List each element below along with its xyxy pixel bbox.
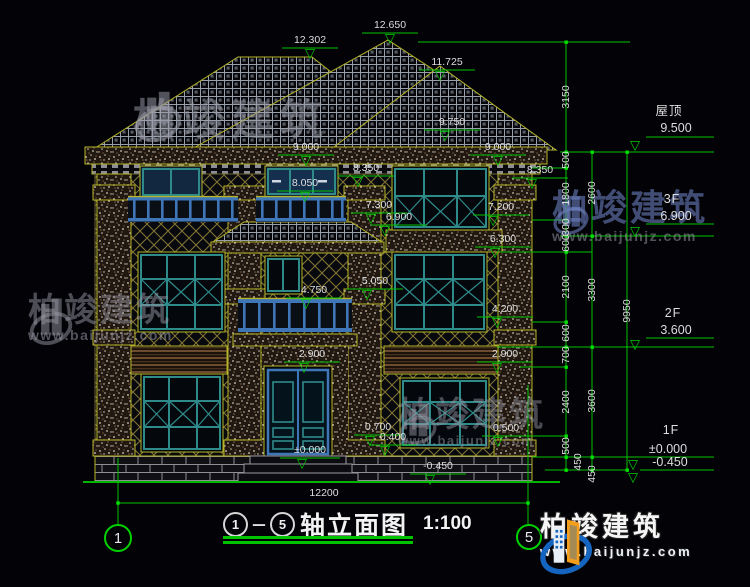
level-triangle-icon: ▽ <box>492 361 502 374</box>
dim-label: 9.750 <box>439 117 465 128</box>
chain-dim-label: 1800 <box>561 182 572 205</box>
level-triangle-icon: ▽ <box>493 435 503 448</box>
level-triangle-icon: ▽ <box>305 47 315 60</box>
balcony-3f-left <box>128 197 238 222</box>
dim-label: 8.050 <box>292 178 318 189</box>
level-triangle-icon: ▽ <box>628 471 638 484</box>
dim-label: -0.450 <box>423 461 453 472</box>
level-name-label: 屋顶 <box>655 105 682 118</box>
title-dash: － <box>251 512 267 536</box>
chain-dim-label: 500 <box>561 437 572 455</box>
balcony-slab-2f <box>233 334 357 346</box>
dim-label: 9.000 <box>293 142 319 153</box>
level-triangle-icon: ▽ <box>492 316 502 329</box>
chain-dim-label: 600 <box>561 324 572 342</box>
level-triangle-icon: ▽ <box>301 297 311 310</box>
dim-label: 2.900 <box>492 349 518 360</box>
level-value-label: ±0.000 <box>649 443 687 456</box>
chain-dim-label: 2600 <box>587 181 598 204</box>
level-name-label: 2F <box>665 307 682 320</box>
level-triangle-icon: ▽ <box>299 361 309 374</box>
column-right <box>498 174 532 456</box>
dim-label: 7.300 <box>366 200 392 211</box>
level-triangle-icon: ▽ <box>385 32 395 45</box>
dim-label: 0.500 <box>493 423 519 434</box>
level-triangle-icon: ▽ <box>365 434 375 447</box>
dim-label: 7.200 <box>488 202 514 213</box>
level-triangle-icon: ▽ <box>630 225 640 238</box>
elevation-drawing <box>0 0 750 587</box>
level-name-label: 3F <box>664 193 681 206</box>
column-left <box>97 174 131 456</box>
chain-dim-label: 500 <box>561 151 572 169</box>
chain-dim-label: 2100 <box>561 275 572 298</box>
level-triangle-icon: ▽ <box>435 69 445 82</box>
level-triangle-icon: ▽ <box>380 444 390 457</box>
dim-label: 8.350 <box>353 163 379 174</box>
level-triangle-icon: ▽ <box>488 214 498 227</box>
level-triangle-icon: ▽ <box>362 288 372 301</box>
level-triangle-icon: ▽ <box>301 154 311 167</box>
level-triangle-icon: ▽ <box>527 177 537 190</box>
level-triangle-icon: ▽ <box>630 139 640 152</box>
dim-label: 4.200 <box>492 304 518 315</box>
dim-label: 11.725 <box>431 57 462 68</box>
chain-dim-label: 700 <box>561 346 572 364</box>
title-axis-from: 1 <box>223 512 248 537</box>
dim-label: ±0.000 <box>294 445 326 456</box>
brand-logo: 柏竣建筑 www.baijunjz.com <box>540 514 692 558</box>
title-underline-1 <box>223 536 413 539</box>
level-triangle-icon: ▽ <box>297 457 307 470</box>
level-value-label: 9.500 <box>660 122 691 135</box>
chain-dim-label: 3600 <box>587 389 598 412</box>
dim-label: 12.302 <box>294 35 326 46</box>
chain-dim-label: 3300 <box>587 278 598 301</box>
level-triangle-icon: ▽ <box>493 154 503 167</box>
level-value-label: -0.450 <box>652 456 687 469</box>
level-triangle-icon: ▽ <box>630 338 640 351</box>
level-name-label: 1F <box>663 424 680 437</box>
wood-band-left <box>131 346 227 374</box>
chain-dim-label: 9950 <box>622 299 633 322</box>
title-underline-2 <box>223 541 413 544</box>
chain-dim-label: 450 <box>587 465 598 483</box>
dim-label: 6.300 <box>490 234 516 245</box>
level-triangle-icon: ▽ <box>440 129 450 142</box>
level-value-label: 6.900 <box>660 210 691 223</box>
dim-label: 5.050 <box>362 276 388 287</box>
title-axis-to: 5 <box>270 512 295 537</box>
dim-label: 8.350 <box>527 165 553 176</box>
level-triangle-icon: ▽ <box>366 212 376 225</box>
dim-label: 0.400 <box>380 432 406 443</box>
brand-logo-icon <box>540 514 594 576</box>
title-scale: 1:100 <box>423 513 472 535</box>
level-triangle-icon: ▽ <box>425 473 435 486</box>
axis-bubble-1: 1 <box>104 524 132 552</box>
chain-dim-label: 600 <box>561 234 572 252</box>
level-triangle-icon: ▽ <box>490 246 500 259</box>
level-triangle-icon: ▽ <box>353 175 363 188</box>
dim-label: 9.000 <box>485 142 511 153</box>
chain-dim-label: 450 <box>573 453 584 471</box>
dim-label: 6.900 <box>386 212 412 223</box>
dim-label: 12.650 <box>374 20 406 31</box>
dim-label: 2.900 <box>299 349 325 360</box>
canopy-fascia <box>211 242 384 253</box>
level-value-label: 3.600 <box>660 324 691 337</box>
level-triangle-icon: ▽ <box>380 224 390 237</box>
level-triangle-icon: ▽ <box>300 190 310 203</box>
chain-dim-label: 2400 <box>561 390 572 413</box>
dim-label: 12200 <box>309 488 338 499</box>
balcony-2f-middle <box>238 298 352 332</box>
chain-dim-label: 3150 <box>561 85 572 108</box>
cad-elevation-canvas: 1－5 轴立面图 1:100 1 5 柏竣建筑 柏竣建筑 www.baijunj… <box>0 0 750 587</box>
slab-3f-right <box>386 230 502 252</box>
wood-band-right <box>384 346 498 374</box>
axis-bubble-5: 5 <box>516 524 542 550</box>
dim-label: 4.750 <box>301 285 327 296</box>
